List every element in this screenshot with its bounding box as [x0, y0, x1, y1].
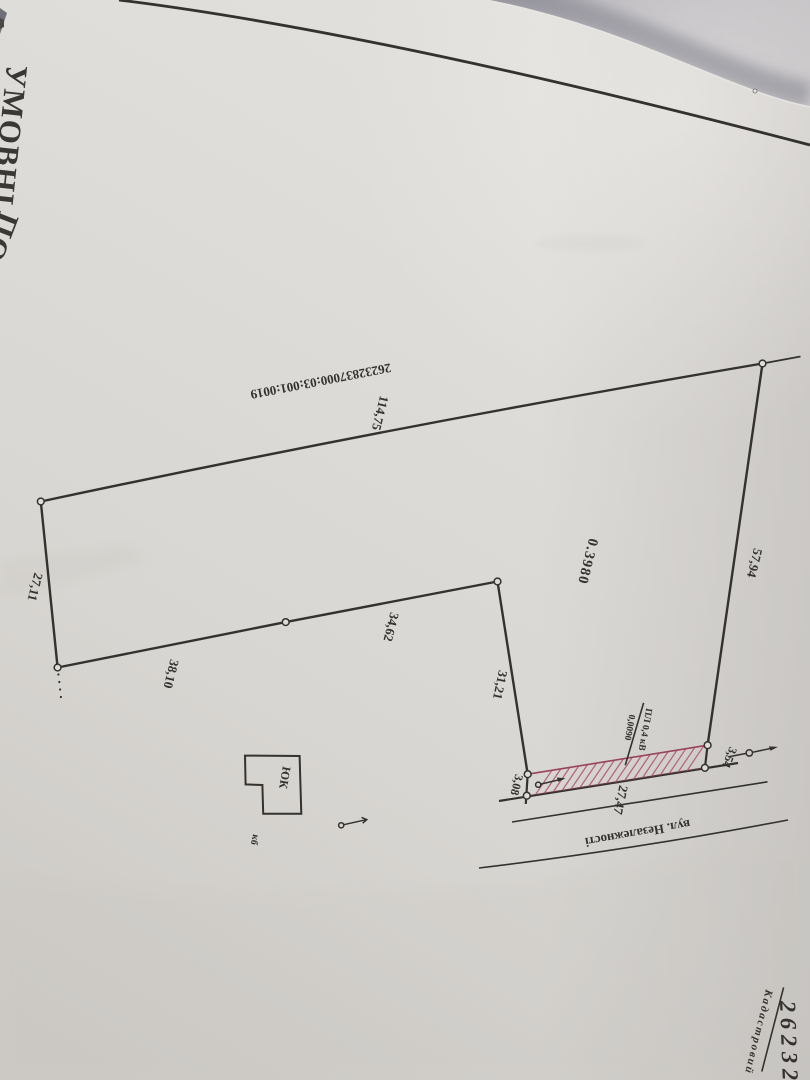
svg-text:26232837: 26232837: [775, 999, 805, 1080]
